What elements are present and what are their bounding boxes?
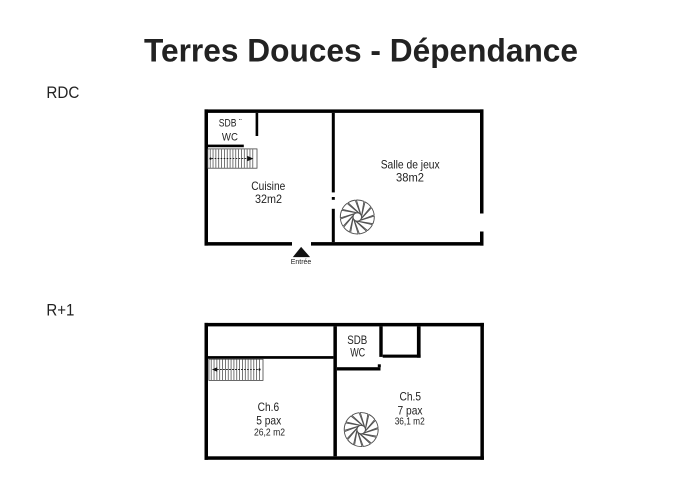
svg-text:R+1: R+1	[46, 301, 74, 320]
svg-text:Entrée: Entrée	[291, 259, 312, 266]
svg-text:Ch.5: Ch.5	[400, 390, 422, 404]
svg-text:Salle de jeux: Salle de jeux	[381, 157, 440, 171]
svg-text:Cuisine: Cuisine	[251, 179, 285, 193]
svg-text:36,1 m2: 36,1 m2	[395, 416, 425, 427]
svg-text:SDB ¨: SDB ¨	[219, 117, 242, 129]
svg-text:38m2: 38m2	[396, 171, 424, 185]
svg-text:Ch.6: Ch.6	[258, 400, 280, 414]
svg-text:WC: WC	[350, 346, 365, 360]
svg-text:Terres Douces - Dépendance: Terres Douces - Dépendance	[144, 33, 578, 69]
svg-text:RDC: RDC	[46, 83, 79, 102]
svg-text:WC: WC	[222, 131, 238, 143]
svg-text:5 pax: 5 pax	[256, 414, 281, 428]
svg-text:32m2: 32m2	[255, 192, 282, 206]
svg-text:26,2 m2: 26,2 m2	[254, 428, 285, 439]
